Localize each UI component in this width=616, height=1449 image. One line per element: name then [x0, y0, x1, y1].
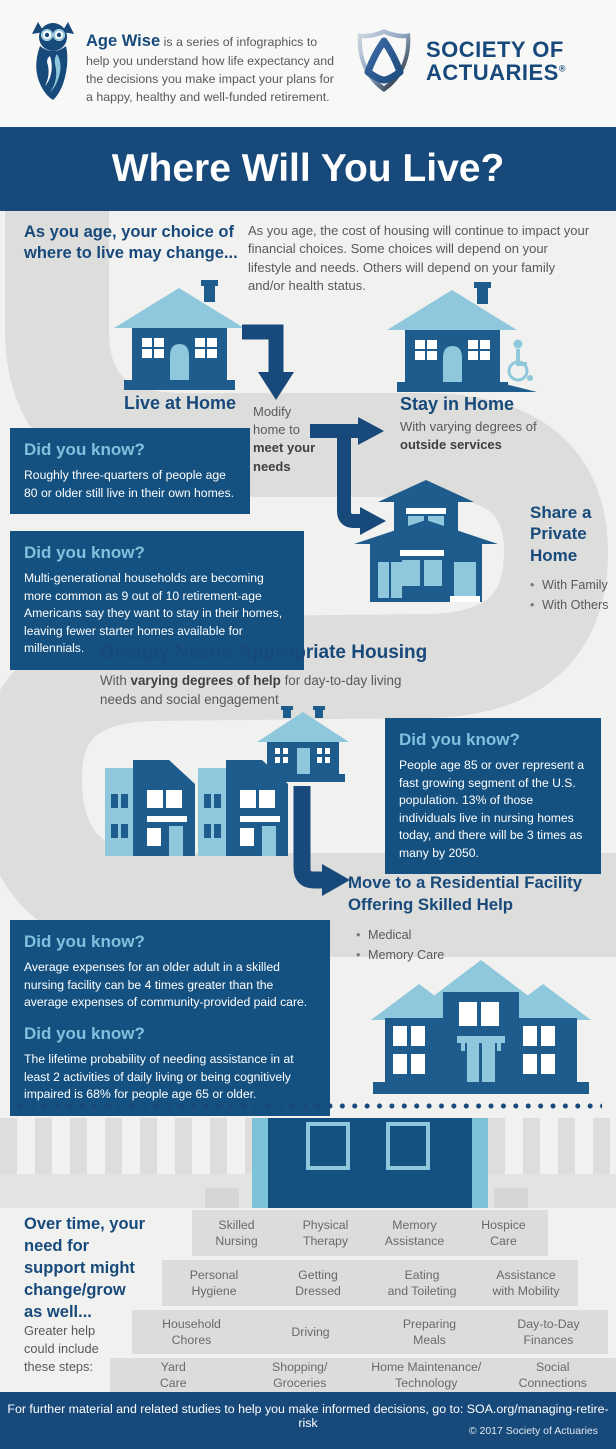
infographic-canvas: Age Wise is a series of infographics to …: [0, 0, 616, 1449]
fact-text: Average expenses for an older adult in a…: [24, 959, 316, 1012]
stay-pre: With varying degrees of: [400, 419, 537, 434]
step-cell: Yard Care: [110, 1359, 237, 1391]
label-share-home: Share a Private Home: [530, 502, 616, 566]
move-bullet-1: Medical: [356, 926, 506, 946]
step-cell: Social Connections: [490, 1359, 616, 1391]
occupy-note: With varying degrees of help for day-to-…: [100, 671, 410, 709]
share-bullet-2: With Others: [530, 596, 616, 616]
share-bullets: With Family With Others: [530, 576, 616, 615]
soa-line1: SOCIETY OF: [426, 38, 565, 61]
facility-icon: [365, 958, 597, 1094]
fence-left: [0, 1118, 252, 1174]
title-banner: Where Will You Live?: [0, 127, 616, 211]
occupy-bold: varying degrees of help: [131, 673, 281, 688]
label-stay-in-home: Stay in Home: [400, 394, 514, 415]
brand-name: Age Wise: [86, 32, 160, 50]
arrow-down-icon: [240, 322, 300, 404]
step-cell: Day-to-Day Finances: [489, 1316, 608, 1348]
step-cell: Assistance with Mobility: [474, 1267, 578, 1299]
fact-box-3: Did you know? People age 85 or over repr…: [385, 718, 601, 874]
page-title: Where Will You Live?: [0, 127, 616, 211]
entrance-graphic: [268, 1118, 472, 1208]
soa-wordmark: SOCIETY OF ACTUARIES®: [426, 38, 565, 85]
registered-mark: ®: [559, 64, 566, 74]
soa-line2: ACTUARIES: [426, 60, 559, 85]
fact-heading: Did you know?: [24, 543, 290, 563]
soa-shield-icon: [356, 28, 412, 94]
wheelchair-icon: [509, 340, 533, 382]
fact-box-4: Did you know? Average expenses for an ol…: [10, 920, 330, 1024]
fact-text: Roughly three-quarters of people age 80 …: [24, 467, 236, 502]
teal-pillar-right: [472, 1118, 488, 1208]
support-heading: Over time, your need for support might c…: [24, 1214, 146, 1324]
owl-logo-icon: [24, 20, 82, 104]
step-cell: Personal Hygiene: [162, 1267, 266, 1299]
step-row-4: Yard Care Shopping/ Groceries Home Maint…: [110, 1358, 616, 1392]
stay-bold: outside services: [400, 437, 502, 452]
step-row-2: Personal Hygiene Getting Dressed Eating …: [162, 1260, 578, 1306]
occupy-heading: Occupy Needs-Appropriate Housing: [100, 642, 460, 664]
fact-box-5: Did you know? The lifetime probability o…: [10, 1012, 330, 1116]
step-cell: Eating and Toileting: [370, 1267, 474, 1299]
step-cell: Preparing Meals: [370, 1316, 489, 1348]
step-cell: Memory Assistance: [370, 1217, 459, 1249]
step-cell: Skilled Nursing: [192, 1217, 281, 1249]
fact-text: People age 85 or over represent a fast g…: [399, 757, 587, 862]
footer-copyright: © 2017 Society of Actuaries: [469, 1425, 598, 1437]
step-cell: Hospice Care: [459, 1217, 548, 1249]
fact-heading: Did you know?: [24, 932, 316, 952]
brand-text: Age Wise is a series of infographics to …: [86, 30, 338, 106]
occupy-pre: With: [100, 673, 131, 688]
fact-box-1: Did you know? Roughly three-quarters of …: [10, 428, 250, 514]
step-cell: Getting Dressed: [266, 1267, 370, 1299]
house-stay-in-home-icon: [385, 282, 537, 398]
step-cell: Home Maintenance/ Technology: [363, 1359, 490, 1391]
teal-pillar-left: [252, 1118, 268, 1208]
step-row-3: Household Chores Driving Preparing Meals…: [132, 1310, 608, 1354]
sign-house-icon: [255, 706, 351, 788]
townhouse-icon: [103, 752, 203, 858]
dotted-divider: [14, 1103, 602, 1109]
house-live-at-home-icon: [112, 280, 247, 398]
footer: For further material and related studies…: [0, 1392, 616, 1449]
move-heading: Move to a Residential Facility Offering …: [348, 872, 610, 916]
step-cell: Driving: [251, 1324, 370, 1340]
fact-text: The lifetime probability of needing assi…: [24, 1051, 316, 1104]
pedestal-left: [205, 1188, 239, 1208]
header: Age Wise is a series of infographics to …: [0, 0, 616, 127]
intro-heading: As you age, your choice of where to live…: [24, 222, 264, 265]
door-outline: [306, 1122, 350, 1170]
door-outline: [386, 1122, 430, 1170]
label-live-at-home: Live at Home: [108, 393, 252, 414]
step-cell: Shopping/ Groceries: [237, 1359, 364, 1391]
fence-right: [488, 1118, 616, 1174]
share-bullet-1: With Family: [530, 576, 616, 596]
step-cell: Household Chores: [132, 1316, 251, 1348]
house-share-home-icon: [350, 478, 502, 610]
support-note: Greater help could include these steps:: [24, 1322, 124, 1376]
fact-heading: Did you know?: [399, 730, 587, 750]
pedestal-right: [494, 1188, 528, 1208]
fact-heading: Did you know?: [24, 1024, 316, 1044]
stay-note: With varying degrees of outside services: [400, 418, 570, 454]
modify-pre: Modify home to: [253, 404, 300, 437]
fact-heading: Did you know?: [24, 440, 236, 460]
step-row-1: Skilled Nursing Physical Therapy Memory …: [192, 1210, 548, 1256]
step-cell: Physical Therapy: [281, 1217, 370, 1249]
